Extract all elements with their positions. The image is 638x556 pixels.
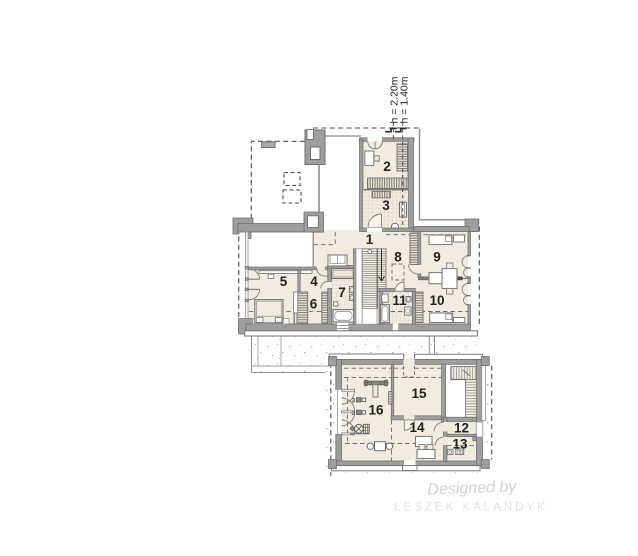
svg-text:h = 1.40m: h = 1.40m bbox=[399, 76, 411, 123]
svg-text:13: 13 bbox=[452, 436, 468, 451]
svg-text:12: 12 bbox=[454, 421, 469, 436]
svg-text:7: 7 bbox=[338, 285, 346, 300]
svg-text:6: 6 bbox=[310, 297, 318, 312]
svg-text:1: 1 bbox=[366, 232, 374, 247]
svg-text:9: 9 bbox=[433, 250, 441, 265]
svg-text:8: 8 bbox=[394, 250, 402, 265]
svg-text:Designed by: Designed by bbox=[427, 478, 517, 498]
svg-text:2: 2 bbox=[383, 159, 391, 174]
svg-text:LESZEK KALANDYK: LESZEK KALANDYK bbox=[394, 502, 548, 514]
svg-text:4: 4 bbox=[310, 274, 318, 289]
svg-text:16: 16 bbox=[368, 403, 384, 418]
svg-text:3: 3 bbox=[382, 198, 390, 213]
svg-text:10: 10 bbox=[429, 293, 444, 308]
svg-text:3: 3 bbox=[352, 410, 356, 417]
svg-text:14: 14 bbox=[409, 420, 425, 435]
svg-text:11: 11 bbox=[392, 293, 407, 308]
svg-text:3: 3 bbox=[352, 398, 356, 405]
svg-text:5: 5 bbox=[280, 274, 288, 289]
svg-text:15: 15 bbox=[411, 386, 427, 401]
